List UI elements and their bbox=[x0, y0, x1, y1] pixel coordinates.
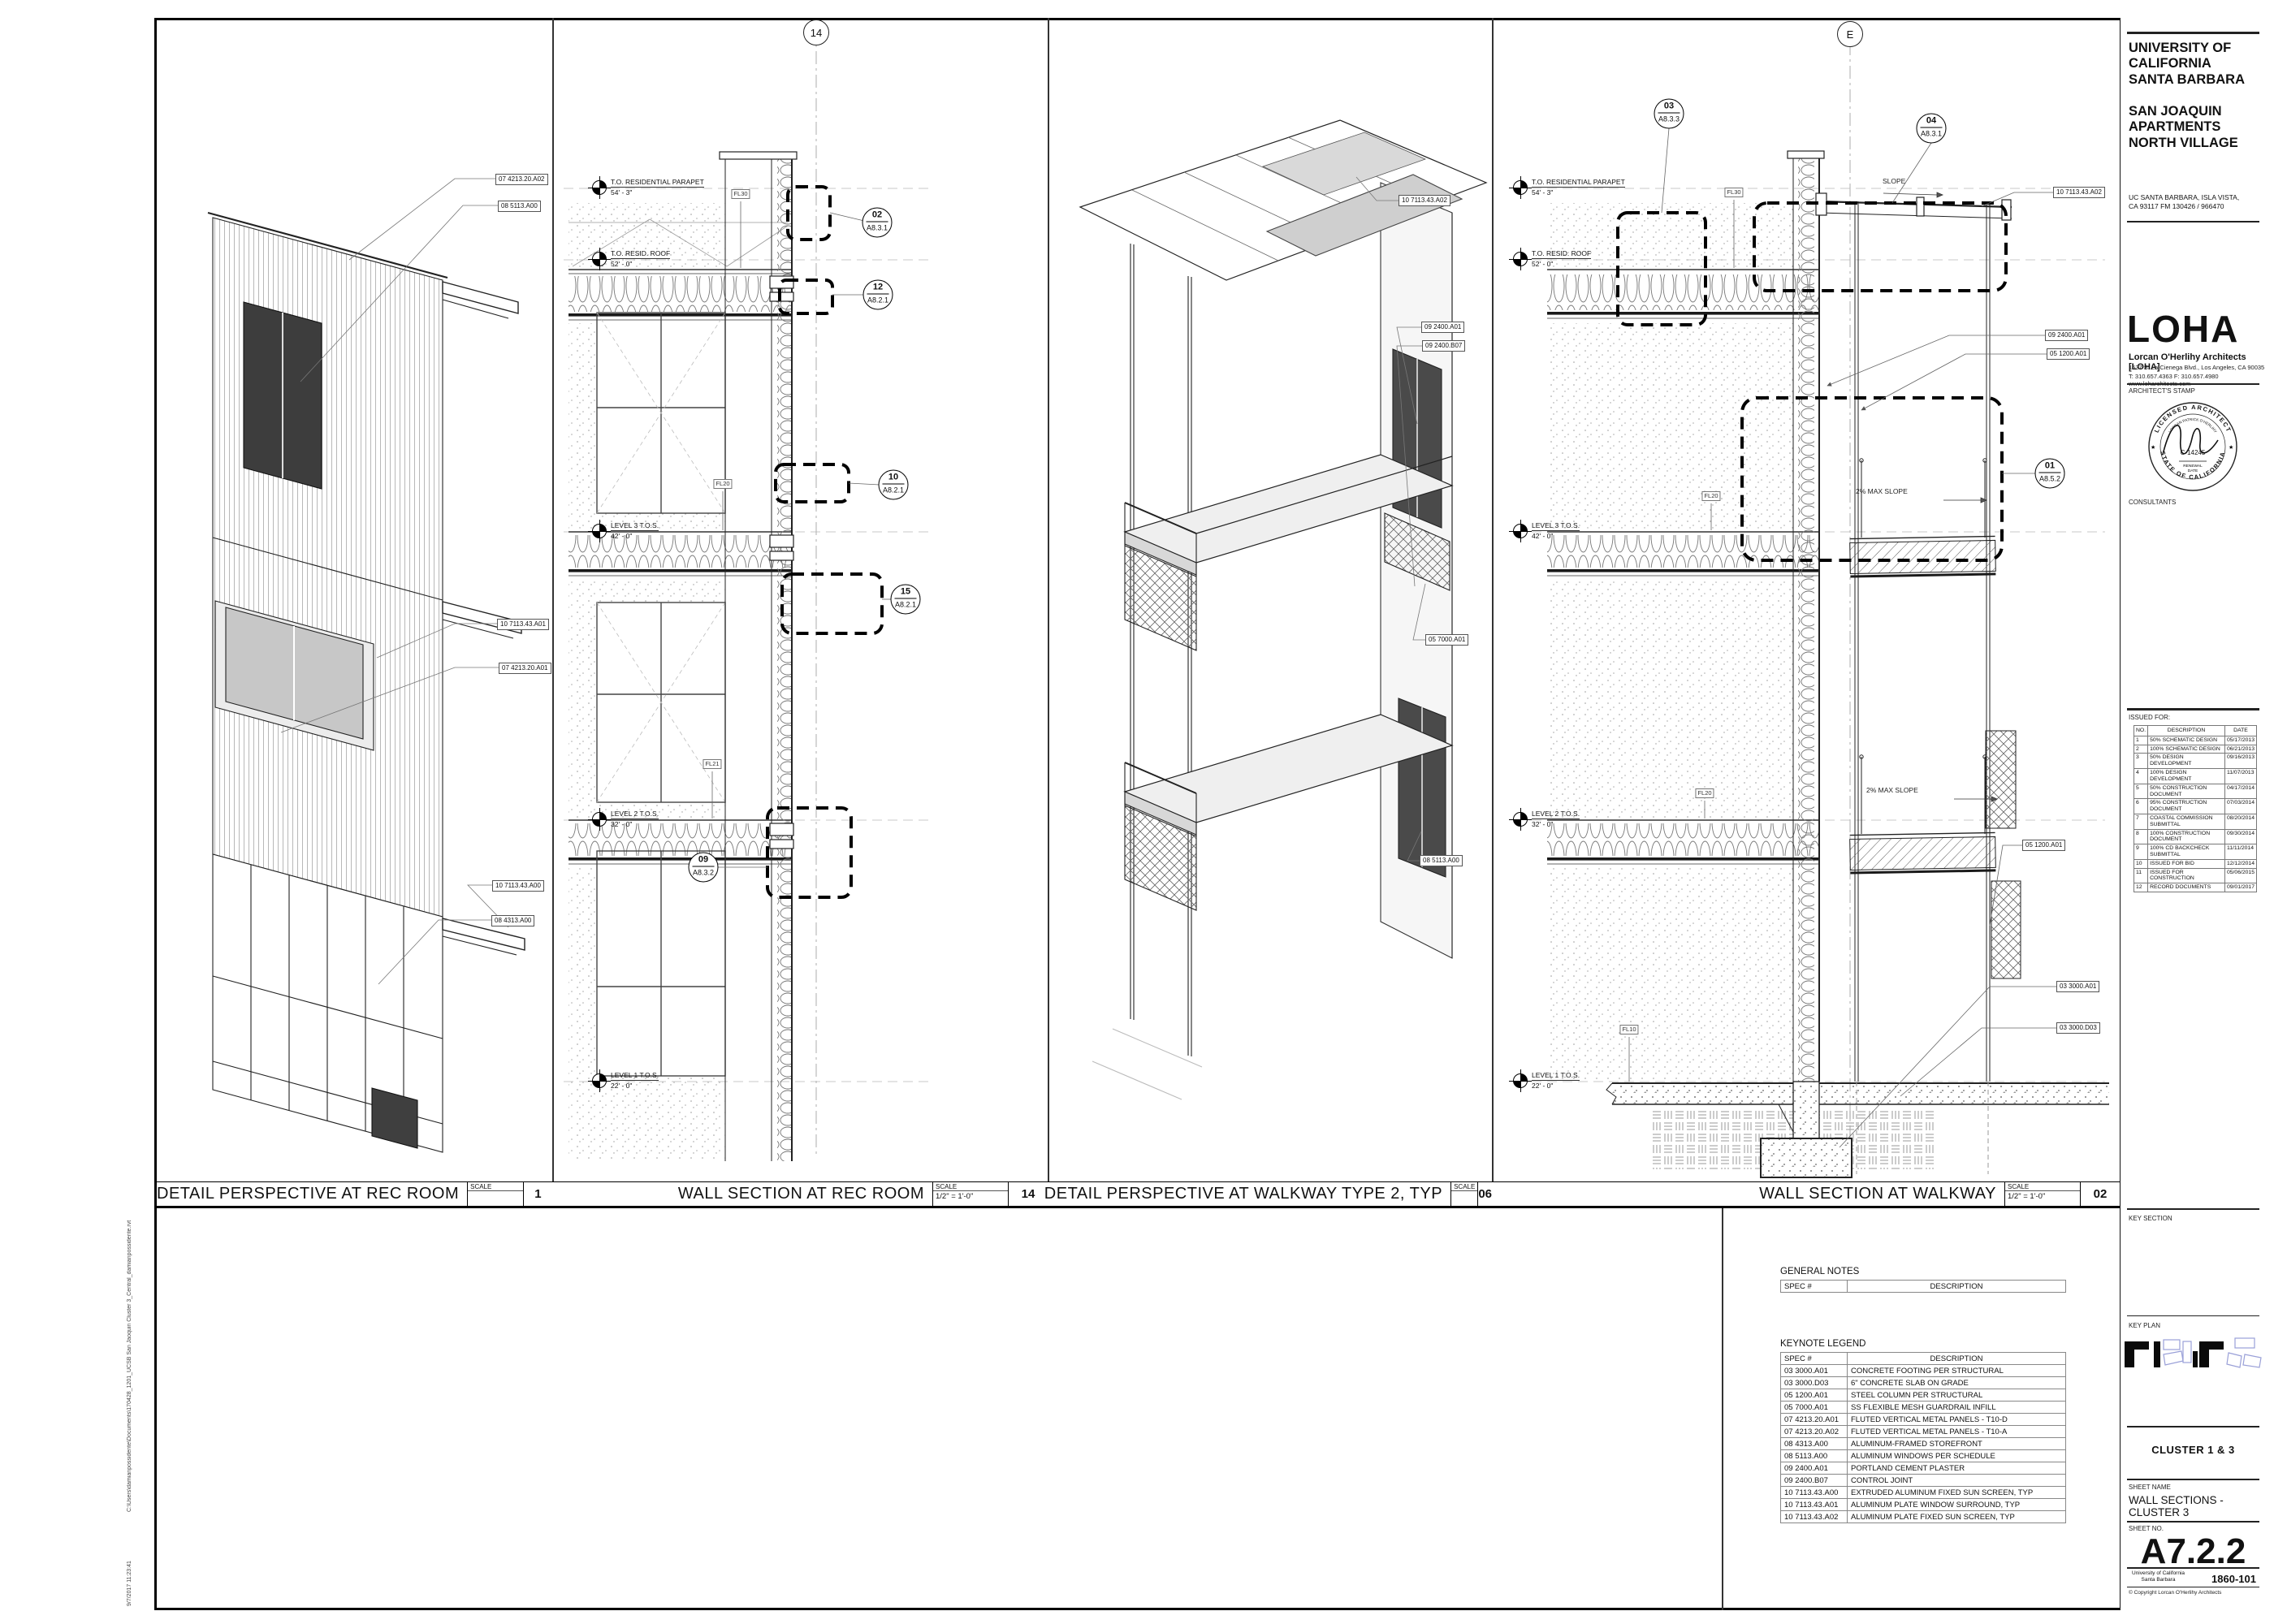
divider bbox=[2127, 221, 2259, 222]
table-row: 05 1200.A01STEEL COLUMN PER STRUCTURAL bbox=[1781, 1389, 2066, 1402]
detail-callout-bubble: 10A8.2.1 bbox=[879, 470, 909, 500]
table-row: 10 7113.43.A01ALUMINUM PLATE WINDOW SURR… bbox=[1781, 1499, 2066, 1511]
detail-callout-bubble: 03A8.3.3 bbox=[1654, 99, 1684, 129]
drawing-sheet: C:\Users\damianpossidente\Documents\1704… bbox=[0, 0, 2274, 1624]
table-row: 10ISSUED FOR BID12/12/2014 bbox=[2134, 859, 2257, 868]
issued-col-no: NO. bbox=[2134, 726, 2148, 736]
table-row: 10 7113.43.A00EXTRUDED ALUMINUM FIXED SU… bbox=[1781, 1487, 2066, 1499]
table-row: 2100% SCHEMATIC DESIGN06/21/2013 bbox=[2134, 745, 2257, 754]
table-row: 09 2400.B07CONTROL JOINT bbox=[1781, 1475, 2066, 1487]
p2-title-bar: WALL SECTION AT REC ROOM SCALE1/2" = 1'-… bbox=[552, 1181, 1048, 1208]
divider bbox=[2127, 708, 2259, 710]
divider bbox=[2127, 1208, 2259, 1210]
keynote-tag: 07 4213.20.A02 bbox=[495, 174, 548, 185]
table-row: 350% DESIGN DEVELOPMENT09/16/2013 bbox=[2134, 754, 2257, 769]
p4-title: WALL SECTION AT WALKWAY bbox=[1759, 1185, 1996, 1203]
level-marker: LEVEL 2 T.O.S.32' - 0" bbox=[592, 810, 659, 828]
svg-text:RENEWAL: RENEWAL bbox=[2183, 464, 2203, 469]
p3-scale-box: SCALE bbox=[1450, 1182, 1477, 1206]
detail-callout-bubble: 01A8.5.2 bbox=[2035, 459, 2065, 489]
divider bbox=[2127, 1479, 2259, 1480]
divider bbox=[2127, 1587, 2259, 1587]
p1-drawing bbox=[159, 18, 552, 1181]
keynote-tag: 03 3000.A01 bbox=[2056, 981, 2099, 992]
floor-type-tag: FL20 bbox=[1695, 788, 1714, 798]
table-row: 09 2400.A01PORTLAND CEMENT PLASTER bbox=[1781, 1462, 2066, 1475]
keynote-tag: 07 4213.20.A01 bbox=[499, 663, 551, 674]
divider bbox=[2127, 1567, 2259, 1569]
key-plan-map bbox=[2121, 1332, 2266, 1374]
detail-callout-bubble: 15A8.2.1 bbox=[891, 585, 921, 615]
p3-title: DETAIL PERSPECTIVE AT WALKWAY TYPE 2, TY… bbox=[1044, 1185, 1442, 1203]
level-symbol bbox=[1513, 180, 1528, 195]
floor-type-tag: FL21 bbox=[703, 759, 721, 769]
grid-bubble: 14 bbox=[803, 19, 829, 45]
divider bbox=[2127, 1521, 2259, 1522]
keynote-tag: 09 2400.A01 bbox=[1421, 322, 1464, 333]
table-row: 08 5113.A00ALUMINUM WINDOWS PER SCHEDULE bbox=[1781, 1450, 2066, 1462]
divider bbox=[2127, 1315, 2259, 1316]
plot-datetime: 9/7/2017 11:23:41 bbox=[127, 1517, 132, 1606]
keynote-tag: 10 7113.43.A02 bbox=[2053, 187, 2105, 198]
table-row: 03 3000.D036" CONCRETE SLAB ON GRADE bbox=[1781, 1377, 2066, 1389]
level-marker: T.O. RESID. ROOF52' - 0" bbox=[592, 249, 670, 268]
table-row: 8100% CONSTRUCTION DOCUMENT09/30/2014 bbox=[2134, 829, 2257, 844]
firm-address: 1537 S. La Cienega Blvd., Los Angeles, C… bbox=[2129, 364, 2264, 371]
client-name: UNIVERSITY OF CALIFORNIA SANTA BARBARA bbox=[2129, 41, 2245, 88]
general-notes-table: SPEC # DESCRIPTION bbox=[1780, 1280, 2066, 1293]
general-notes-col-desc: DESCRIPTION bbox=[1848, 1281, 2066, 1293]
keynote-tag: 08 5113.A00 bbox=[1420, 855, 1463, 866]
floor-type-tag: FL30 bbox=[731, 189, 750, 199]
floor-type-tag: FL30 bbox=[1724, 188, 1743, 197]
p2-number: 14 bbox=[1008, 1182, 1048, 1206]
level-marker: T.O. RESIDENTIAL PARAPET54' - 3" bbox=[1513, 178, 1625, 197]
table-row: 05 7000.A01SS FLEXIBLE MESH GUARDRAIL IN… bbox=[1781, 1402, 2066, 1414]
p1-title-bar: DETAIL PERSPECTIVE AT REC ROOM SCALE 1 bbox=[157, 1181, 552, 1208]
level-marker: LEVEL 3 T.O.S.42' - 0" bbox=[592, 521, 659, 540]
project-name: SAN JOAQUIN APARTMENTS NORTH VILLAGE bbox=[2129, 104, 2238, 151]
table-row: 150% SCHEMATIC DESIGN05/17/2013 bbox=[2134, 736, 2257, 745]
p2-title: WALL SECTION AT REC ROOM bbox=[678, 1185, 924, 1203]
star-icon: ★ bbox=[2229, 444, 2233, 451]
keynote-tag: 09 2400.A01 bbox=[2045, 330, 2088, 341]
level-marker: LEVEL 1 T.O.S.22' - 0" bbox=[592, 1071, 659, 1090]
keynote-legend-table: SPEC # DESCRIPTION 03 3000.A01CONCRETE F… bbox=[1780, 1352, 2066, 1523]
divider bbox=[2127, 1426, 2259, 1427]
plot-file-path: C:\Users\damianpossidente\Documents\1704… bbox=[127, 1200, 132, 1512]
stamp-label: ARCHITECT'S STAMP bbox=[2129, 387, 2195, 395]
project-number: 1860-101 bbox=[2211, 1573, 2256, 1585]
p4-title-bar: WALL SECTION AT WALKWAY SCALE1/2" = 1'-0… bbox=[1492, 1181, 2120, 1208]
level-symbol bbox=[592, 1073, 607, 1088]
keynote-tag: 10 7113.43.A01 bbox=[497, 619, 549, 630]
grid-bubble: E bbox=[1837, 21, 1863, 47]
concrete-footing bbox=[1761, 1138, 1852, 1177]
level-symbol bbox=[1513, 252, 1528, 266]
university-footer: University of California Santa Barbara bbox=[2132, 1570, 2185, 1583]
keynote-col-desc: DESCRIPTION bbox=[1848, 1353, 2066, 1365]
firm-contact: T: 310.657.4363 F: 310.657.4980 www.loha… bbox=[2129, 373, 2266, 387]
level-marker: LEVEL 1 T.O.S.22' - 0" bbox=[1513, 1071, 1580, 1090]
keynote-tag: 08 5113.A00 bbox=[498, 201, 541, 212]
project-address: UC SANTA BARBARA, ISLA VISTA, CA 93117 F… bbox=[2129, 193, 2239, 212]
table-row: 11ISSUED FOR CONSTRUCTION05/06/2015 bbox=[2134, 868, 2257, 883]
consultants-label: CONSULTANTS bbox=[2129, 499, 2176, 506]
detail-callout-bubble: 12A8.2.1 bbox=[863, 280, 893, 310]
issued-col-date: DATE bbox=[2224, 726, 2256, 736]
key-plan-label: KEY PLAN bbox=[2129, 1322, 2160, 1329]
sheet-name-label: SHEET NAME bbox=[2129, 1484, 2171, 1491]
table-row: 4100% DESIGN DEVELOPMENT11/07/2013 bbox=[2134, 769, 2257, 784]
level-symbol bbox=[1513, 524, 1528, 538]
notes-separator bbox=[1722, 1208, 1723, 1610]
level-marker: LEVEL 2 T.O.S.32' - 0" bbox=[1513, 810, 1580, 828]
level-symbol bbox=[592, 524, 607, 538]
p4-number: 02 bbox=[2080, 1182, 2120, 1206]
level-symbol bbox=[592, 180, 607, 195]
level-symbol bbox=[1513, 812, 1528, 827]
level-marker: T.O. RESIDENTIAL PARAPET54' - 3" bbox=[592, 178, 704, 197]
svg-text:DATE: DATE bbox=[2188, 469, 2198, 473]
detail-callout-bubble: 02A8.3.1 bbox=[862, 208, 893, 238]
table-row: 03 3000.A01CONCRETE FOOTING PER STRUCTUR… bbox=[1781, 1365, 2066, 1377]
level-marker: LEVEL 3 T.O.S.42' - 0" bbox=[1513, 521, 1580, 540]
table-row: 07 4213.20.A01FLUTED VERTICAL METAL PANE… bbox=[1781, 1414, 2066, 1426]
slope-label: SLOPE bbox=[1883, 177, 1905, 185]
detail-callout-bubble: 04A8.3.1 bbox=[1917, 114, 1947, 144]
level-symbol bbox=[1513, 1073, 1528, 1088]
key-section-label: KEY SECTION bbox=[2129, 1215, 2172, 1222]
copyright: © Copyright Lorcan O'Herlihy Architects bbox=[2129, 1590, 2221, 1596]
keynote-col-spec: SPEC # bbox=[1781, 1353, 1848, 1365]
slope-label: 2% MAX SLOPE bbox=[1856, 487, 1908, 495]
table-row: 10 7113.43.A02ALUMINUM PLATE FIXED SUN S… bbox=[1781, 1511, 2066, 1523]
divider bbox=[2127, 383, 2259, 385]
level-symbol bbox=[592, 812, 607, 827]
cluster-label: CLUSTER 1 & 3 bbox=[2121, 1444, 2266, 1456]
table-row: 7COASTAL COMMISSION SUBMITTAL08/20/2014 bbox=[2134, 814, 2257, 829]
keynote-tag: 10 7113.43.A02 bbox=[1399, 195, 1450, 206]
table-row: 550% CONSTRUCTION DOCUMENT04/17/2014 bbox=[2134, 784, 2257, 799]
divider bbox=[2127, 32, 2259, 34]
floor-type-tag: FL10 bbox=[1619, 1025, 1638, 1034]
sheet-name: WALL SECTIONS - CLUSTER 3 bbox=[2129, 1494, 2266, 1518]
keynote-tag: 08 4313.A00 bbox=[491, 915, 534, 926]
floor-type-tag: FL20 bbox=[1701, 491, 1720, 501]
slope-label: 2% MAX SLOPE bbox=[1866, 786, 1918, 794]
star-icon: ★ bbox=[2151, 444, 2155, 451]
detail-callout-bubble: 09A8.3.2 bbox=[689, 853, 719, 883]
level-symbol bbox=[592, 252, 607, 266]
table-row: 695% CONSTRUCTION DOCUMENT07/03/2014 bbox=[2134, 799, 2257, 814]
issued-col-desc: DESCRIPTION bbox=[2148, 726, 2225, 736]
p2-scale-box: SCALE1/2" = 1'-0" bbox=[932, 1182, 1008, 1206]
keynote-tag: 05 1200.A01 bbox=[2047, 348, 2090, 360]
sheet-number: A7.2.2 bbox=[2121, 1531, 2266, 1572]
issued-for-label: ISSUED FOR: bbox=[2129, 714, 2170, 721]
table-row: 07 4213.20.A02FLUTED VERTICAL METAL PANE… bbox=[1781, 1426, 2066, 1438]
level-marker: T.O. RESID. ROOF52' - 0" bbox=[1513, 249, 1591, 268]
p3-title-bar: DETAIL PERSPECTIVE AT WALKWAY TYPE 2, TY… bbox=[1048, 1181, 1492, 1208]
issued-for-table: NO. DESCRIPTION DATE 150% SCHEMATIC DESI… bbox=[2133, 725, 2257, 892]
keynote-tag: 05 7000.A01 bbox=[1425, 634, 1468, 646]
floor-type-tag: FL20 bbox=[713, 479, 732, 489]
p3-number: 06 bbox=[1477, 1182, 1492, 1206]
firm-logo: LOHA bbox=[2127, 310, 2239, 348]
keynote-tag: 03 3000.D03 bbox=[2056, 1022, 2100, 1034]
table-row: 08 4313.A00ALUMINUM-FRAMED STOREFRONT bbox=[1781, 1438, 2066, 1450]
general-notes-col-spec: SPEC # bbox=[1781, 1281, 1848, 1293]
p1-number: 1 bbox=[523, 1182, 552, 1206]
title-block: UNIVERSITY OF CALIFORNIA SANTA BARBARA S… bbox=[2120, 18, 2266, 1610]
p1-scale-box: SCALE bbox=[467, 1182, 523, 1206]
general-notes-label: GENERAL NOTES bbox=[1780, 1267, 1859, 1276]
p1-title: DETAIL PERSPECTIVE AT REC ROOM bbox=[157, 1185, 459, 1203]
keynote-tag: 09 2400.B07 bbox=[1422, 340, 1465, 352]
keynote-tag: 05 1200.A01 bbox=[2022, 840, 2065, 851]
keynote-tag: 10 7113.43.A00 bbox=[492, 880, 544, 892]
architect-stamp: LICENSED ARCHITECT STATE OF CALIFORNIA L… bbox=[2140, 396, 2246, 497]
table-row: 12RECORD DOCUMENTS09/01/2017 bbox=[2134, 883, 2257, 892]
p4-scale-box: SCALE1/2" = 1'-0" bbox=[2004, 1182, 2080, 1206]
keynote-legend-label: KEYNOTE LEGEND bbox=[1780, 1339, 1865, 1349]
p3-drawing bbox=[1048, 18, 1492, 1181]
table-row: 9100% CD BACKCHECK SUBMITTAL11/11/2014 bbox=[2134, 844, 2257, 860]
